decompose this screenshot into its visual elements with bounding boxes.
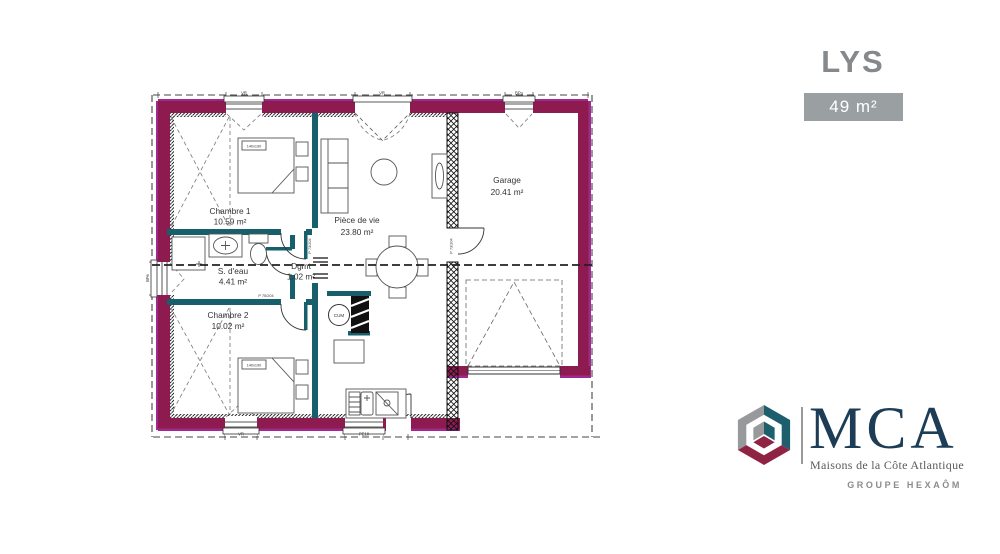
window-label-top-1: VR — [241, 91, 247, 96]
window-label-left: BFe — [145, 273, 150, 281]
brand-tagline: Maisons de la Côte Atlantique — [810, 458, 966, 473]
door-label-1: P 73/204 — [308, 238, 312, 253]
garage-door — [466, 280, 562, 374]
room-area-sdeau: 4.41 m² — [219, 277, 247, 287]
room-label-garage: Garage — [493, 175, 521, 185]
room-label-piece-de-vie: Pièce de vie — [334, 215, 380, 225]
window-label-top-3: BPu — [515, 91, 524, 96]
bed2-size-label: 140x190 — [247, 364, 262, 368]
brand-divider — [801, 407, 803, 464]
room-area-chambre-1: 10.59 m² — [214, 217, 247, 227]
water-heater-label: CUM — [334, 313, 345, 318]
door-label-2: P 73/204 — [450, 238, 454, 253]
room-label-chambre-1: Chambre 1 — [209, 206, 250, 216]
room-area-dgmt: 1.02 m² — [287, 272, 315, 282]
room-label-dgmt: Dgmt — [291, 261, 312, 271]
plan-title: LYS — [800, 44, 906, 80]
brand-group: GROUPE HEXAÔM — [810, 480, 962, 490]
door-label-3: P 75/204 — [258, 294, 273, 298]
passage-marks — [313, 258, 328, 278]
window-label-bottom-2: PE10 — [359, 432, 370, 437]
room-label-sdeau: S. d'eau — [218, 266, 249, 276]
bed1-size-label: 140x190 — [247, 145, 262, 149]
floor-plan: Chambre 1 10.59 m² Pièce de vie 23.80 m²… — [144, 84, 614, 448]
area-badge: 49 m² — [804, 93, 903, 121]
garage-separation-wall — [447, 113, 458, 430]
brand-name: MCA — [809, 398, 958, 458]
room-area-chambre-2: 10.02 m² — [212, 321, 245, 331]
window-label-bottom-1: VR — [238, 432, 244, 437]
window-label-top-2: VR — [379, 91, 385, 96]
room-area-garage: 20.41 m² — [491, 187, 524, 197]
mca-logo-icon — [735, 402, 793, 468]
room-area-piece-de-vie: 23.80 m² — [341, 227, 374, 237]
room-label-chambre-2: Chambre 2 — [207, 310, 248, 320]
page: LYS 49 m² — [0, 0, 1000, 554]
